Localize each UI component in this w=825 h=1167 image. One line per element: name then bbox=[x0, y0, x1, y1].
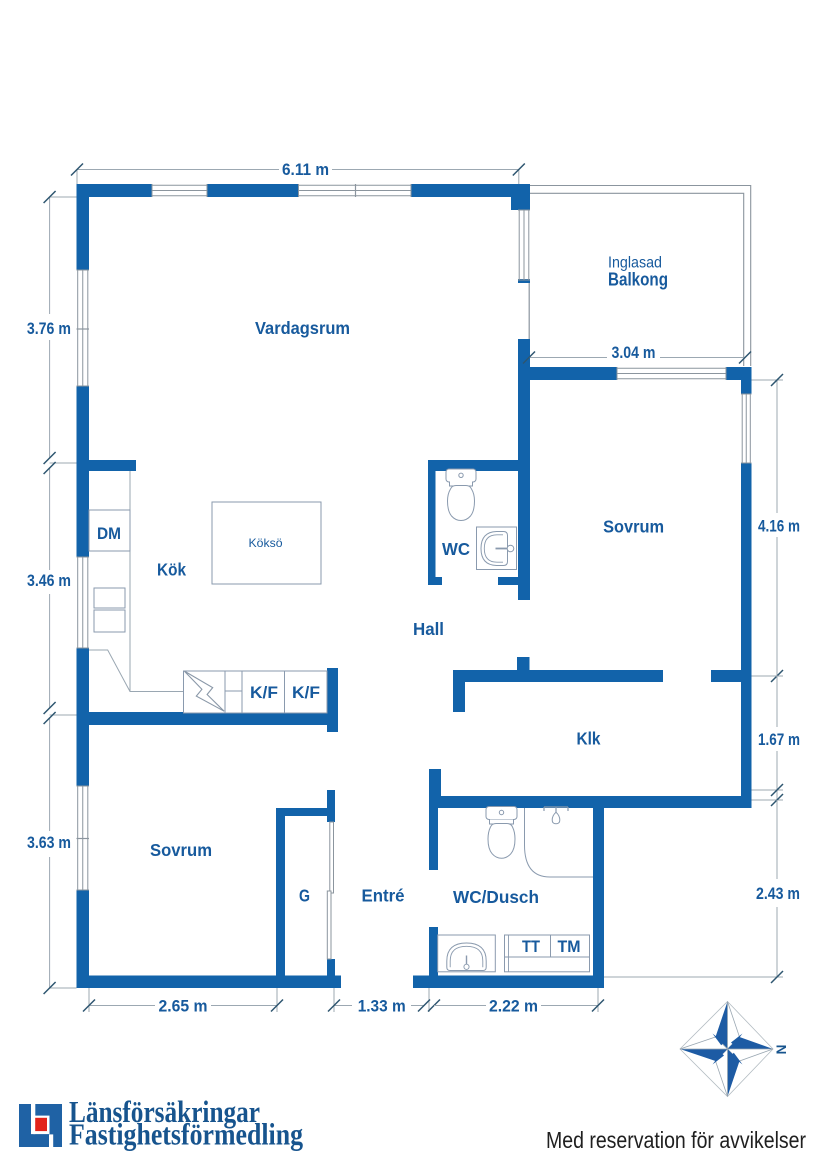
svg-text:TM: TM bbox=[558, 938, 581, 956]
svg-text:DM: DM bbox=[97, 525, 121, 543]
svg-text:N: N bbox=[774, 1045, 789, 1055]
svg-text:K/F: K/F bbox=[250, 684, 278, 702]
svg-text:Med reservation för avvikelser: Med reservation för avvikelser bbox=[546, 1127, 806, 1153]
svg-text:Hall: Hall bbox=[413, 619, 444, 639]
svg-text:3.04 m: 3.04 m bbox=[612, 343, 656, 362]
svg-text:2.65 m: 2.65 m bbox=[159, 997, 208, 1016]
svg-text:1.33 m: 1.33 m bbox=[358, 997, 406, 1016]
svg-text:Klk: Klk bbox=[577, 729, 601, 749]
svg-text:Vardagsrum: Vardagsrum bbox=[255, 318, 350, 338]
svg-text:2.43 m: 2.43 m bbox=[756, 884, 800, 903]
svg-text:3.63 m: 3.63 m bbox=[27, 833, 71, 852]
svg-text:WC/Dusch: WC/Dusch bbox=[453, 887, 539, 907]
svg-text:4.16 m: 4.16 m bbox=[758, 517, 800, 536]
svg-text:K/F: K/F bbox=[292, 684, 320, 702]
svg-text:Sovrum: Sovrum bbox=[603, 517, 664, 537]
svg-text:Entré: Entré bbox=[362, 886, 405, 906]
svg-text:3.76 m: 3.76 m bbox=[27, 319, 71, 338]
svg-text:G: G bbox=[299, 886, 310, 906]
svg-text:Kök: Kök bbox=[157, 560, 186, 580]
svg-text:6.11 m: 6.11 m bbox=[282, 160, 329, 179]
svg-text:Sovrum: Sovrum bbox=[150, 840, 212, 860]
svg-text:Köksö: Köksö bbox=[249, 536, 283, 550]
svg-text:TT: TT bbox=[522, 938, 540, 956]
svg-text:Balkong: Balkong bbox=[608, 270, 668, 290]
svg-text:WC: WC bbox=[442, 539, 470, 559]
svg-text:1.67 m: 1.67 m bbox=[758, 730, 800, 749]
svg-text:2.22 m: 2.22 m bbox=[489, 997, 538, 1016]
svg-text:Fastighetsförmedling: Fastighetsförmedling bbox=[69, 1117, 303, 1152]
svg-text:3.46 m: 3.46 m bbox=[27, 571, 71, 590]
